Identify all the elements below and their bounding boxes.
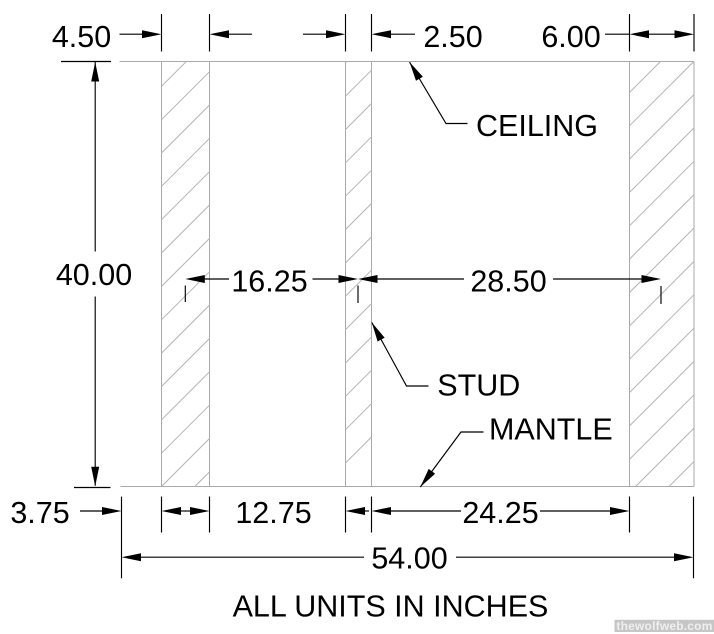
svg-text:40.00: 40.00: [56, 258, 132, 292]
svg-text:CEILING: CEILING: [476, 109, 598, 143]
svg-text:54.00: 54.00: [371, 542, 447, 576]
svg-text:3.75: 3.75: [10, 496, 69, 530]
svg-text:12.75: 12.75: [235, 496, 311, 530]
svg-text:MANTLE: MANTLE: [489, 413, 613, 447]
svg-text:STUD: STUD: [437, 369, 520, 403]
svg-text:4.50: 4.50: [52, 20, 111, 54]
svg-text:6.00: 6.00: [541, 20, 600, 54]
svg-text:16.25: 16.25: [231, 265, 307, 299]
svg-text:28.50: 28.50: [470, 265, 546, 299]
svg-text:2.50: 2.50: [423, 20, 482, 54]
svg-text:24.25: 24.25: [462, 496, 538, 530]
svg-text:ALL UNITS IN INCHES: ALL UNITS IN INCHES: [233, 590, 549, 624]
svg-text:thewolfweb.com: thewolfweb.com: [616, 619, 712, 633]
